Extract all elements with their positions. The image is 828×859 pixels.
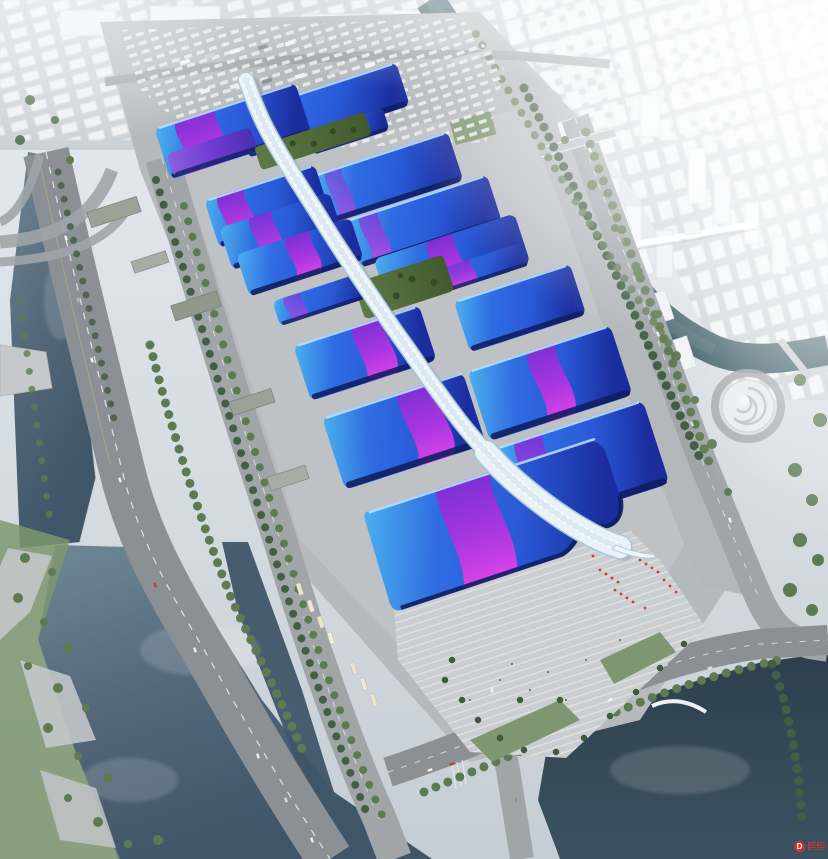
scene-svg: Aerial rendering of a riverside exhibiti…: [0, 0, 828, 859]
spiral-building: [715, 373, 781, 439]
watermark-characters: [807, 837, 825, 855]
watermark-logo: D: [794, 841, 805, 852]
watermark: D: [794, 837, 825, 855]
aerial-rendering: Aerial rendering of a riverside exhibiti…: [0, 0, 828, 859]
